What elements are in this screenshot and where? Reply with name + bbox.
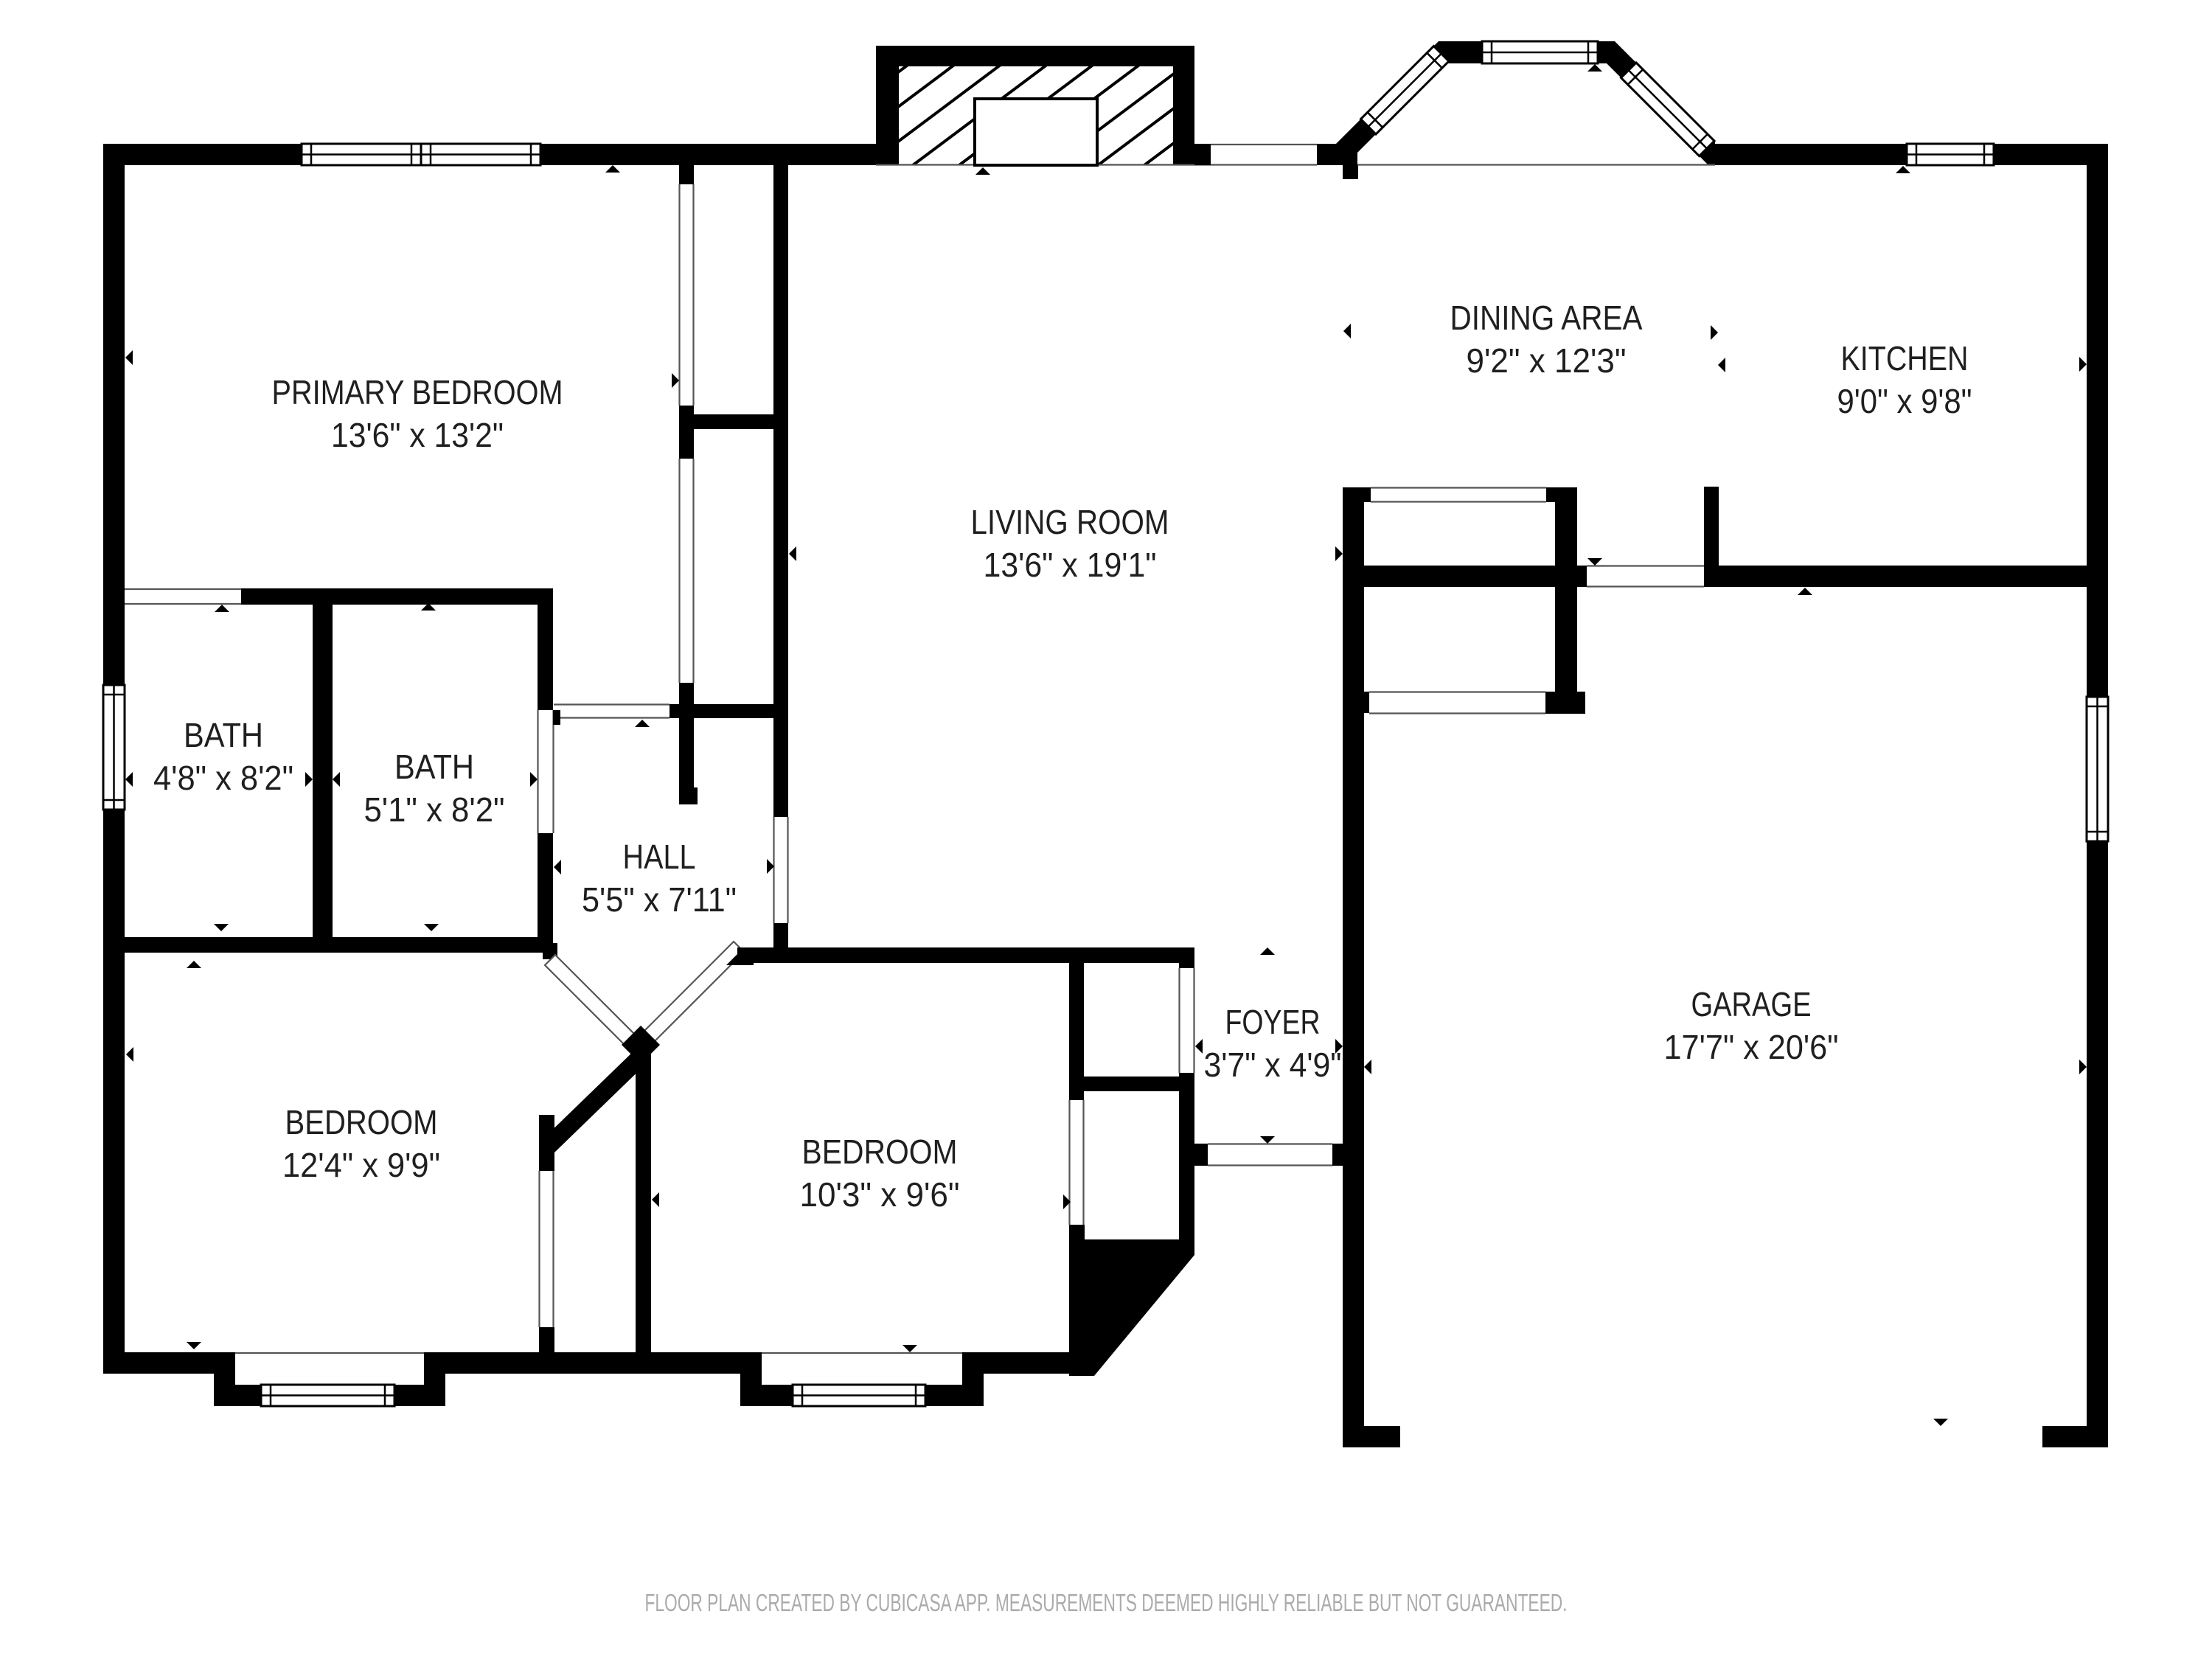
svg-text:3'7" x 4'9": 3'7" x 4'9"	[1204, 1046, 1342, 1084]
svg-text:PRIMARY BEDROOM: PRIMARY BEDROOM	[272, 373, 563, 411]
svg-text:9'0" x 9'8": 9'0" x 9'8"	[1837, 382, 1972, 420]
svg-text:13'6" x 13'2": 13'6" x 13'2"	[331, 416, 504, 454]
svg-text:DINING AREA: DINING AREA	[1450, 299, 1643, 337]
svg-text:BEDROOM: BEDROOM	[285, 1103, 438, 1141]
svg-text:5'1" x 8'2": 5'1" x 8'2"	[364, 790, 505, 829]
svg-text:9'2" x 12'3": 9'2" x 12'3"	[1467, 341, 1627, 380]
svg-text:FOYER: FOYER	[1225, 1003, 1321, 1041]
svg-text:17'7" x 20'6": 17'7" x 20'6"	[1664, 1028, 1839, 1066]
svg-text:5'5" x 7'11": 5'5" x 7'11"	[582, 880, 737, 919]
svg-text:GARAGE: GARAGE	[1691, 985, 1812, 1023]
svg-text:4'8" x 8'2": 4'8" x 8'2"	[153, 759, 293, 797]
svg-text:BATH: BATH	[394, 748, 474, 786]
svg-text:BEDROOM: BEDROOM	[802, 1133, 958, 1171]
svg-text:BATH: BATH	[184, 716, 263, 754]
svg-text:10'3" x 9'6": 10'3" x 9'6"	[800, 1175, 960, 1214]
svg-text:KITCHEN: KITCHEN	[1841, 339, 1969, 378]
svg-text:LIVING ROOM: LIVING ROOM	[971, 503, 1169, 541]
svg-text:13'6" x 19'1": 13'6" x 19'1"	[984, 546, 1157, 584]
svg-text:12'4" x 9'9": 12'4" x 9'9"	[282, 1146, 440, 1184]
svg-text:FLOOR PLAN CREATED BY CUBICASA: FLOOR PLAN CREATED BY CUBICASA APP. MEAS…	[645, 1589, 1568, 1616]
svg-text:HALL: HALL	[623, 838, 696, 876]
